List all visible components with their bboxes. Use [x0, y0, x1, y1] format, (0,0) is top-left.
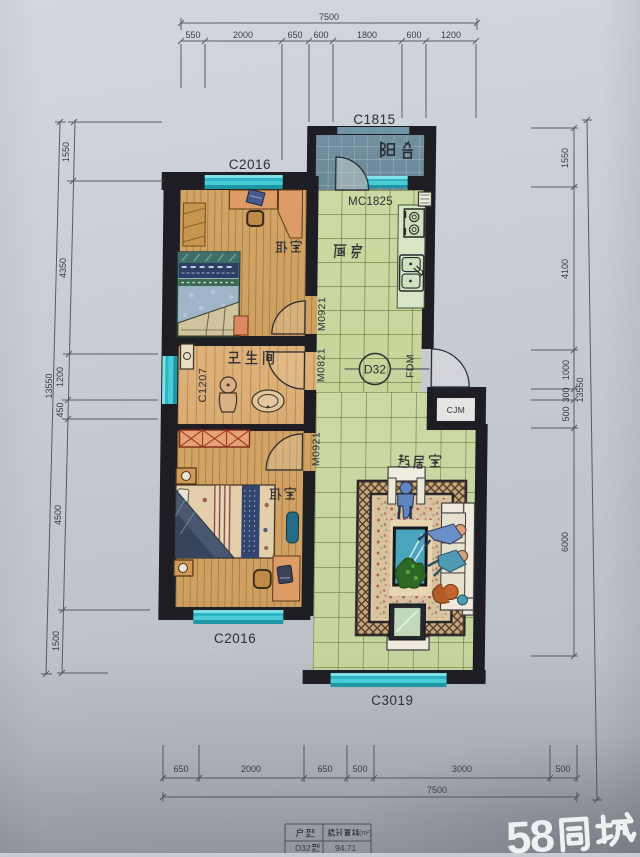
- svg-text:D32: D32: [295, 843, 311, 853]
- svg-text:(m²): (m²): [359, 830, 372, 837]
- svg-text:1800: 1800: [357, 30, 377, 40]
- svg-text:7500: 7500: [427, 785, 447, 795]
- svg-text:1500: 1500: [51, 631, 61, 651]
- svg-text:550: 550: [185, 30, 200, 40]
- svg-text:4350: 4350: [58, 258, 68, 278]
- svg-text:500: 500: [352, 764, 367, 774]
- svg-text:58: 58: [505, 810, 556, 857]
- svg-text:300: 300: [561, 387, 571, 402]
- svg-text:1200: 1200: [55, 367, 65, 387]
- svg-text:13550: 13550: [575, 377, 585, 402]
- svg-text:650: 650: [317, 764, 332, 774]
- svg-text:13550: 13550: [44, 373, 54, 398]
- svg-text:1200: 1200: [441, 30, 461, 40]
- svg-text:4100: 4100: [560, 259, 570, 279]
- svg-text:600: 600: [313, 30, 328, 40]
- svg-text:6000: 6000: [560, 532, 570, 552]
- svg-text:1550: 1550: [560, 148, 570, 168]
- svg-text:1550: 1550: [61, 142, 71, 162]
- svg-text:650: 650: [173, 764, 188, 774]
- svg-text:650: 650: [287, 30, 302, 40]
- svg-text:4500: 4500: [53, 505, 63, 525]
- svg-text:600: 600: [406, 30, 421, 40]
- svg-text:2000: 2000: [233, 30, 253, 40]
- svg-text:94.71: 94.71: [335, 843, 357, 853]
- svg-text:1000: 1000: [561, 360, 571, 380]
- svg-text:3000: 3000: [452, 764, 472, 774]
- svg-text:450: 450: [55, 402, 65, 417]
- svg-text:500: 500: [555, 764, 570, 774]
- svg-text:7500: 7500: [319, 12, 339, 22]
- svg-text:500: 500: [561, 406, 571, 421]
- svg-text:2000: 2000: [241, 764, 261, 774]
